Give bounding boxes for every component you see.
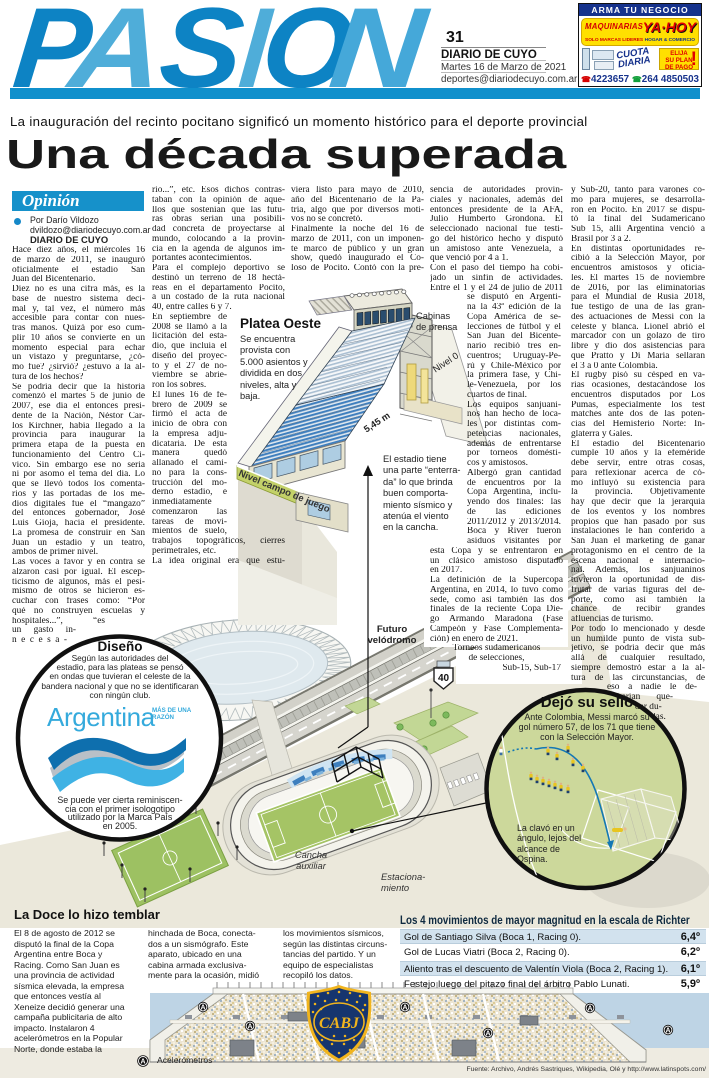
svg-text:CABJ: CABJ <box>319 1015 360 1032</box>
svg-text:A: A <box>247 1024 252 1031</box>
svg-text:A: A <box>402 1005 407 1012</box>
svg-text:40: 40 <box>438 673 450 684</box>
svg-text:A: A <box>665 1028 670 1035</box>
svg-text:A: A <box>587 1006 592 1013</box>
svg-text:A: A <box>200 1005 205 1012</box>
svg-text:A: A <box>140 1059 145 1066</box>
svg-text:A: A <box>485 1031 490 1038</box>
